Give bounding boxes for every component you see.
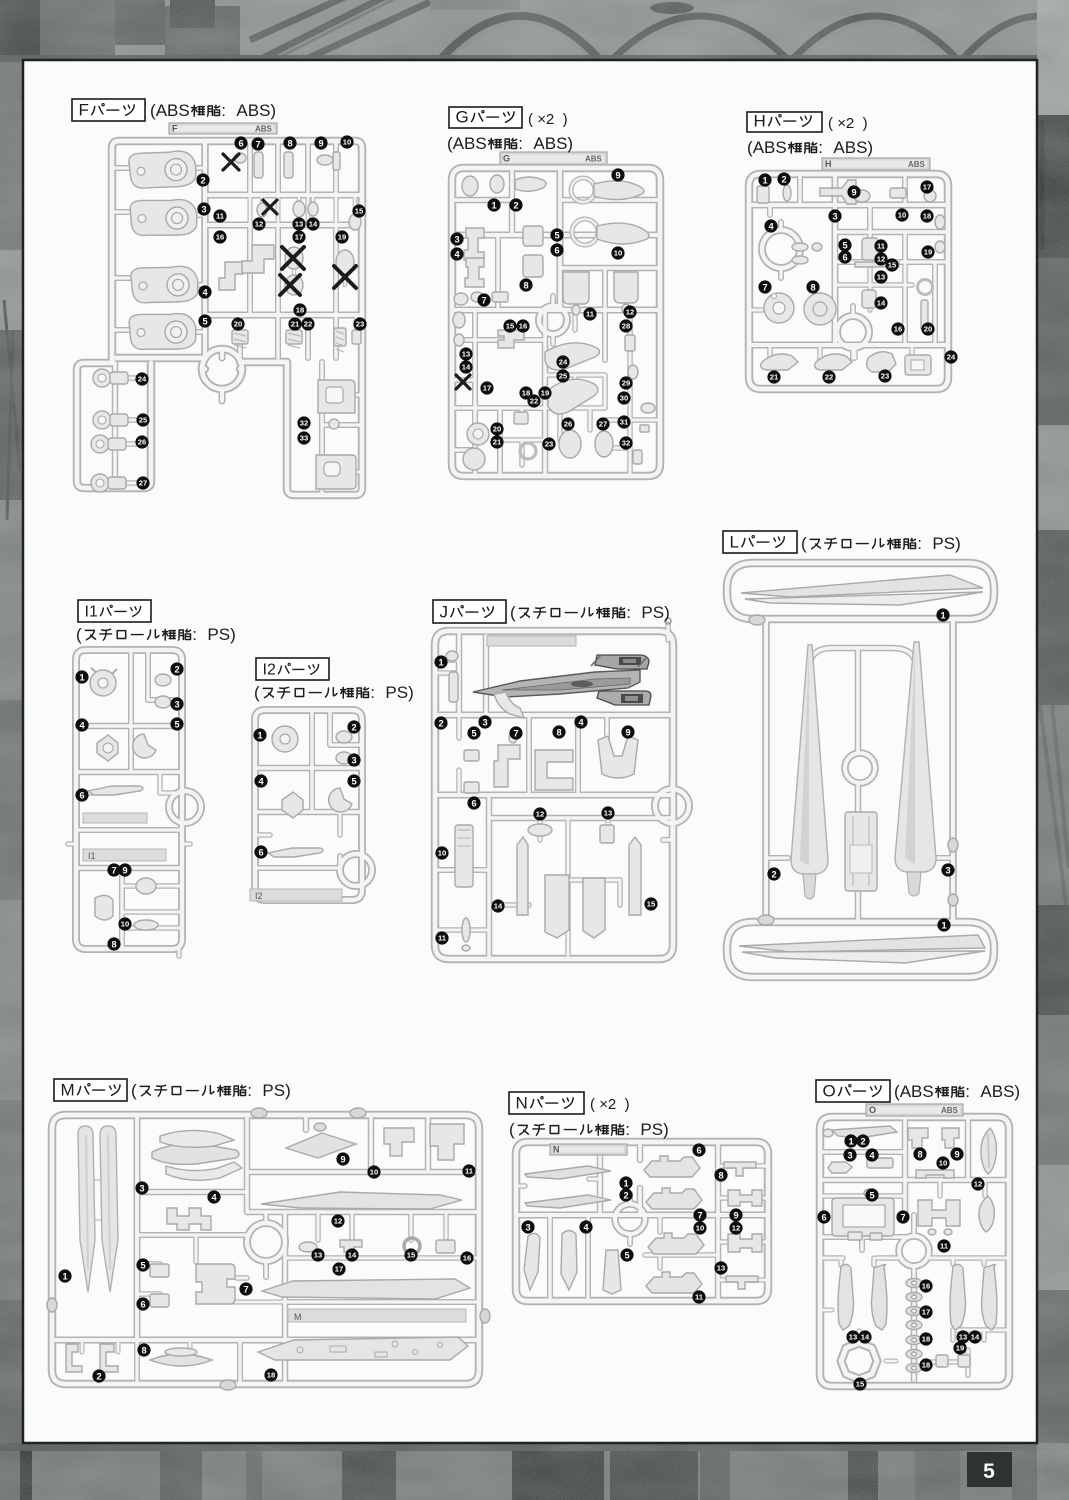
svg-text:17: 17 [335, 1265, 343, 1274]
svg-text:I2: I2 [255, 891, 263, 901]
svg-text:10: 10 [343, 138, 351, 147]
svg-text:ABS: ABS [255, 125, 273, 134]
svg-text:): ) [625, 1096, 630, 1113]
svg-text:×: × [537, 111, 546, 128]
svg-text:(: ( [828, 115, 833, 132]
svg-text:PS: PS [640, 1120, 663, 1139]
svg-text:(: ( [510, 603, 516, 622]
svg-text:4: 4 [454, 249, 460, 259]
svg-text::: : [818, 138, 823, 157]
svg-text:13: 13 [604, 809, 612, 818]
svg-text:6: 6 [258, 847, 263, 857]
svg-text:): ) [563, 111, 568, 128]
svg-text:ABS: ABS [753, 138, 787, 157]
svg-text:1: 1 [438, 657, 443, 667]
svg-text:×: × [837, 115, 846, 132]
svg-text:32: 32 [622, 439, 630, 448]
svg-text:16: 16 [922, 1282, 930, 1291]
svg-text::: : [192, 625, 197, 644]
svg-text:13: 13 [295, 220, 303, 229]
svg-text:10: 10 [898, 211, 906, 220]
svg-text:H: H [825, 159, 832, 169]
svg-text:O: O [869, 1105, 876, 1115]
svg-text:): ) [567, 134, 573, 153]
svg-text:ABS: ABS [533, 134, 567, 153]
svg-text:8: 8 [141, 1345, 146, 1355]
svg-text:14: 14 [462, 363, 471, 372]
svg-text:18: 18 [267, 1371, 275, 1380]
svg-text:ABS: ABS [585, 155, 603, 164]
svg-text:27: 27 [139, 479, 147, 488]
svg-text:12: 12 [732, 1224, 740, 1233]
svg-text:ABS: ABS [833, 138, 867, 157]
svg-text:9: 9 [851, 187, 856, 197]
svg-text:J: J [440, 603, 449, 622]
svg-text:19: 19 [338, 233, 346, 242]
svg-text:8: 8 [111, 939, 116, 949]
svg-text:17: 17 [295, 233, 303, 242]
svg-text:): ) [285, 1081, 291, 1100]
svg-text:): ) [270, 101, 276, 120]
svg-text:10: 10 [939, 1159, 947, 1168]
svg-text:3: 3 [525, 1222, 530, 1232]
svg-text:(: ( [528, 111, 533, 128]
svg-text:15: 15 [355, 207, 364, 216]
svg-text:1: 1 [79, 672, 84, 682]
svg-text:9: 9 [340, 1154, 345, 1164]
svg-text:PS: PS [385, 683, 408, 702]
svg-text:2: 2 [513, 200, 518, 210]
svg-text:4: 4 [79, 720, 85, 730]
svg-text:ABS: ABS [453, 134, 487, 153]
svg-text:8: 8 [917, 1149, 922, 1159]
svg-text:14: 14 [348, 1251, 357, 1260]
svg-text:16: 16 [216, 233, 224, 242]
svg-text:3: 3 [945, 865, 950, 875]
svg-text:): ) [1014, 1082, 1020, 1101]
svg-text:7: 7 [513, 728, 518, 738]
svg-text::: : [221, 101, 226, 120]
svg-text:2: 2 [351, 722, 356, 732]
svg-text:6: 6 [79, 790, 84, 800]
svg-text:18: 18 [922, 1335, 930, 1344]
svg-text:1: 1 [762, 175, 767, 185]
svg-text:14: 14 [309, 220, 318, 229]
svg-text:28: 28 [622, 322, 630, 331]
svg-text:29: 29 [622, 379, 630, 388]
svg-text:8: 8 [523, 280, 528, 290]
svg-text:1: 1 [257, 730, 262, 740]
svg-text:8: 8 [287, 138, 292, 148]
svg-text:18: 18 [296, 306, 304, 315]
svg-text:5: 5 [174, 719, 179, 729]
svg-text::: : [625, 1120, 630, 1139]
svg-text:10: 10 [370, 1168, 378, 1177]
svg-text:7: 7 [481, 295, 486, 305]
svg-text::: : [370, 683, 375, 702]
svg-text:5: 5 [471, 728, 476, 738]
svg-text:PS: PS [932, 534, 955, 553]
svg-text:): ) [663, 1120, 669, 1139]
svg-text:M: M [294, 1312, 302, 1322]
svg-text:7: 7 [243, 1284, 248, 1294]
svg-text:1: 1 [848, 1136, 853, 1146]
svg-text:2: 2 [860, 1136, 865, 1146]
svg-text:H: H [754, 112, 766, 131]
svg-text:2: 2 [846, 115, 854, 132]
svg-text:2: 2 [546, 111, 554, 128]
svg-text:23: 23 [881, 372, 889, 381]
svg-text:3: 3 [351, 755, 356, 765]
svg-text:(: ( [509, 1120, 515, 1139]
svg-text:30: 30 [620, 394, 628, 403]
svg-text:G: G [456, 108, 469, 127]
svg-text:15: 15 [888, 261, 897, 270]
svg-text:F: F [79, 101, 89, 120]
svg-text:): ) [863, 115, 868, 132]
svg-text:6: 6 [471, 798, 476, 808]
svg-text:4: 4 [578, 717, 584, 727]
svg-text:23: 23 [356, 320, 364, 329]
svg-text:2: 2 [174, 664, 179, 674]
svg-text:10: 10 [121, 920, 129, 929]
svg-text:17: 17 [922, 1308, 930, 1317]
svg-text:12: 12 [536, 810, 544, 819]
svg-text:5: 5 [842, 240, 847, 250]
svg-text:L: L [730, 533, 739, 552]
svg-text:4: 4 [583, 1222, 589, 1232]
svg-text:5: 5 [869, 1190, 874, 1200]
svg-text:18: 18 [923, 212, 931, 221]
svg-text:1: 1 [491, 200, 496, 210]
svg-text:23: 23 [545, 440, 553, 449]
svg-text:9: 9 [615, 170, 620, 180]
svg-text:6: 6 [238, 138, 243, 148]
svg-text:×: × [599, 1096, 608, 1113]
svg-text:ABS: ABS [900, 1082, 934, 1101]
svg-text:ABS: ABS [236, 101, 270, 120]
svg-text:14: 14 [877, 299, 886, 308]
svg-text:7: 7 [900, 1212, 905, 1222]
svg-text:31: 31 [620, 418, 629, 427]
svg-text::: : [518, 134, 523, 153]
svg-text:): ) [664, 603, 670, 622]
svg-text:1: 1 [940, 610, 945, 620]
svg-text:17: 17 [483, 384, 491, 393]
svg-text:11: 11 [695, 1293, 704, 1302]
svg-text:19: 19 [956, 1344, 964, 1353]
svg-text:11: 11 [877, 242, 886, 251]
svg-text:16: 16 [894, 325, 902, 334]
svg-text:16: 16 [463, 1254, 471, 1263]
svg-text:10: 10 [696, 1224, 704, 1233]
svg-text:4: 4 [258, 776, 264, 786]
svg-text:7: 7 [255, 139, 260, 149]
svg-text:20: 20 [924, 325, 932, 334]
svg-text:): ) [867, 138, 873, 157]
svg-text:9: 9 [733, 1210, 738, 1220]
svg-text:2: 2 [771, 869, 776, 879]
svg-text:27: 27 [599, 420, 607, 429]
svg-text:9: 9 [122, 865, 127, 875]
svg-text:21: 21 [770, 373, 779, 382]
svg-text:N: N [516, 1094, 528, 1113]
svg-text:26: 26 [564, 420, 572, 429]
svg-text::: : [965, 1082, 970, 1101]
svg-text:5: 5 [554, 230, 559, 240]
svg-text:3: 3 [454, 234, 459, 244]
svg-text::: : [247, 1081, 252, 1100]
svg-text:3: 3 [174, 699, 179, 709]
svg-text:(: ( [590, 1096, 595, 1113]
svg-text:2: 2 [623, 1190, 628, 1200]
svg-text:19: 19 [924, 248, 932, 257]
svg-text:14: 14 [971, 1333, 980, 1342]
svg-text:2: 2 [781, 174, 786, 184]
svg-text:12: 12 [877, 255, 885, 264]
svg-text:3: 3 [201, 204, 206, 214]
svg-text:13: 13 [959, 1333, 967, 1342]
svg-text:7: 7 [697, 1210, 702, 1220]
svg-text:9: 9 [954, 1149, 959, 1159]
svg-text::: : [917, 534, 922, 553]
svg-text:20: 20 [493, 425, 501, 434]
svg-text:7: 7 [762, 282, 767, 292]
svg-text:22: 22 [530, 397, 538, 406]
svg-text:12: 12 [626, 308, 634, 317]
svg-text:14: 14 [494, 902, 503, 911]
svg-text:15: 15 [647, 900, 656, 909]
svg-text:11: 11 [586, 310, 595, 319]
svg-text:I1: I1 [85, 604, 98, 621]
svg-text:6: 6 [696, 1145, 701, 1155]
svg-text:32: 32 [300, 419, 308, 428]
svg-text:13: 13 [849, 1333, 857, 1342]
svg-text:2: 2 [200, 175, 205, 185]
svg-text:13: 13 [717, 1264, 725, 1273]
svg-text:21: 21 [493, 438, 502, 447]
svg-text:3: 3 [482, 717, 487, 727]
svg-text:2: 2 [608, 1096, 616, 1113]
svg-text:N: N [553, 1145, 560, 1155]
svg-text:24: 24 [947, 353, 956, 362]
svg-text:13: 13 [462, 350, 470, 359]
svg-text:4: 4 [211, 1192, 217, 1202]
svg-text:F: F [172, 124, 178, 134]
svg-text:13: 13 [314, 1251, 322, 1260]
svg-text:6: 6 [842, 252, 847, 262]
svg-text:11: 11 [216, 212, 225, 221]
svg-text:2: 2 [438, 718, 443, 728]
svg-text:I2: I2 [263, 662, 276, 679]
svg-text:3: 3 [139, 1183, 144, 1193]
svg-text:6: 6 [140, 1299, 145, 1309]
svg-text:5: 5 [983, 1460, 995, 1483]
svg-text:21: 21 [291, 320, 300, 329]
svg-text:22: 22 [825, 373, 833, 382]
svg-text:G: G [503, 154, 510, 164]
svg-text:18: 18 [922, 1361, 930, 1370]
svg-text:6: 6 [821, 1212, 826, 1222]
svg-text:12: 12 [255, 220, 263, 229]
svg-text:25: 25 [139, 416, 148, 425]
svg-text:13: 13 [877, 273, 885, 282]
svg-text:15: 15 [856, 1380, 865, 1389]
svg-text:(: ( [76, 625, 82, 644]
svg-text:PS: PS [207, 625, 230, 644]
svg-text:8: 8 [556, 727, 561, 737]
svg-text:): ) [408, 683, 414, 702]
svg-text:I1: I1 [88, 851, 96, 861]
svg-text:): ) [230, 625, 236, 644]
svg-text:10: 10 [438, 849, 446, 858]
svg-text::: : [626, 603, 631, 622]
svg-text:3: 3 [832, 211, 837, 221]
svg-text:1: 1 [623, 1178, 628, 1188]
svg-text:3: 3 [847, 1150, 852, 1160]
svg-text:12: 12 [974, 1180, 982, 1189]
svg-text:8: 8 [810, 282, 815, 292]
svg-text:20: 20 [234, 320, 242, 329]
svg-text:17: 17 [923, 183, 931, 192]
svg-text:7: 7 [111, 865, 116, 875]
svg-text:(: ( [254, 683, 260, 702]
svg-text:PS: PS [641, 603, 664, 622]
svg-text:19: 19 [541, 389, 549, 398]
svg-text:16: 16 [519, 322, 527, 331]
svg-text:O: O [823, 1082, 836, 1101]
svg-text:4: 4 [768, 221, 774, 231]
svg-text:2: 2 [96, 1371, 101, 1381]
svg-text:4: 4 [869, 1150, 875, 1160]
svg-text:1: 1 [62, 1271, 67, 1281]
svg-text:4: 4 [202, 287, 208, 297]
svg-text:5: 5 [140, 1260, 145, 1270]
svg-text:26: 26 [138, 438, 146, 447]
svg-text:10: 10 [614, 249, 622, 258]
svg-text:(: ( [131, 1081, 137, 1100]
svg-text:22: 22 [304, 320, 312, 329]
svg-text:15: 15 [506, 322, 515, 331]
svg-text:ABS: ABS [908, 160, 926, 169]
svg-text:25: 25 [559, 372, 568, 381]
svg-text:8: 8 [718, 1170, 723, 1180]
svg-text:5: 5 [624, 1250, 629, 1260]
svg-text:11: 11 [940, 1242, 949, 1251]
svg-text:12: 12 [334, 1217, 342, 1226]
svg-text:33: 33 [300, 434, 308, 443]
svg-text:14: 14 [861, 1333, 870, 1342]
svg-text:9: 9 [318, 138, 323, 148]
svg-text:(: ( [801, 534, 807, 553]
svg-text:1: 1 [941, 920, 946, 930]
svg-text:9: 9 [625, 727, 630, 737]
svg-text:M: M [61, 1081, 75, 1100]
svg-text:PS: PS [262, 1081, 285, 1100]
svg-text:24: 24 [138, 375, 147, 384]
svg-text:5: 5 [202, 316, 207, 326]
svg-text:ABS: ABS [980, 1082, 1014, 1101]
svg-text:ABS: ABS [941, 1106, 959, 1115]
svg-text:11: 11 [438, 934, 447, 943]
svg-text:): ) [955, 534, 961, 553]
svg-text:ABS: ABS [156, 101, 190, 120]
svg-text:11: 11 [465, 1167, 474, 1176]
svg-text:24: 24 [559, 358, 568, 367]
svg-text:5: 5 [351, 776, 356, 786]
svg-text:6: 6 [554, 245, 559, 255]
svg-text:15: 15 [407, 1251, 416, 1260]
